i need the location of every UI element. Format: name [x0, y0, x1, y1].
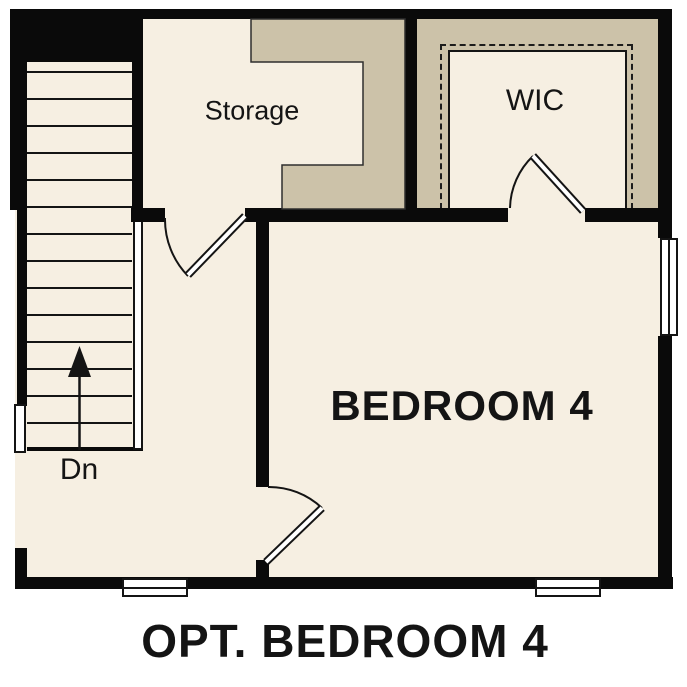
window-pane-divider	[668, 239, 670, 335]
window-right-wall	[660, 238, 678, 336]
stairwell-wall-block	[10, 9, 143, 62]
stairwell-wall-right	[132, 19, 143, 210]
storage-room-label: Storage	[205, 96, 300, 127]
wic-room-label: WIC	[506, 84, 564, 118]
plan-title: OPT. BEDROOM 4	[141, 614, 549, 668]
hall-wall-main	[245, 208, 508, 222]
window-pane-divider	[536, 587, 600, 589]
exterior-wall-right-lower	[658, 336, 672, 589]
stair-bottom-edge	[27, 447, 143, 451]
hall-wall-stub	[131, 208, 165, 222]
stairs-down-label: Dn	[60, 453, 98, 487]
stair-railing	[133, 210, 143, 450]
storage-wic-divider-wall	[405, 9, 417, 222]
exterior-wall-left-upper	[10, 62, 27, 210]
window-bottom-right	[535, 578, 601, 597]
bedroom-door-stub	[256, 560, 269, 577]
staircase	[27, 62, 132, 450]
exterior-wall-left-mid	[17, 210, 27, 406]
window-pane-divider	[123, 587, 187, 589]
floor-plan: Storage WIC BEDROOM 4 Dn OPT. BEDROOM 4	[0, 0, 687, 687]
wic-wall-right-segment	[585, 208, 658, 222]
bedroom4-room-label: BEDROOM 4	[330, 382, 593, 430]
window-bottom-left	[122, 578, 188, 597]
window-left-wall	[14, 404, 26, 453]
wic-floor-inset	[448, 50, 627, 209]
exterior-wall-right-upper	[658, 9, 672, 238]
bedroom-wall-left	[256, 208, 269, 487]
